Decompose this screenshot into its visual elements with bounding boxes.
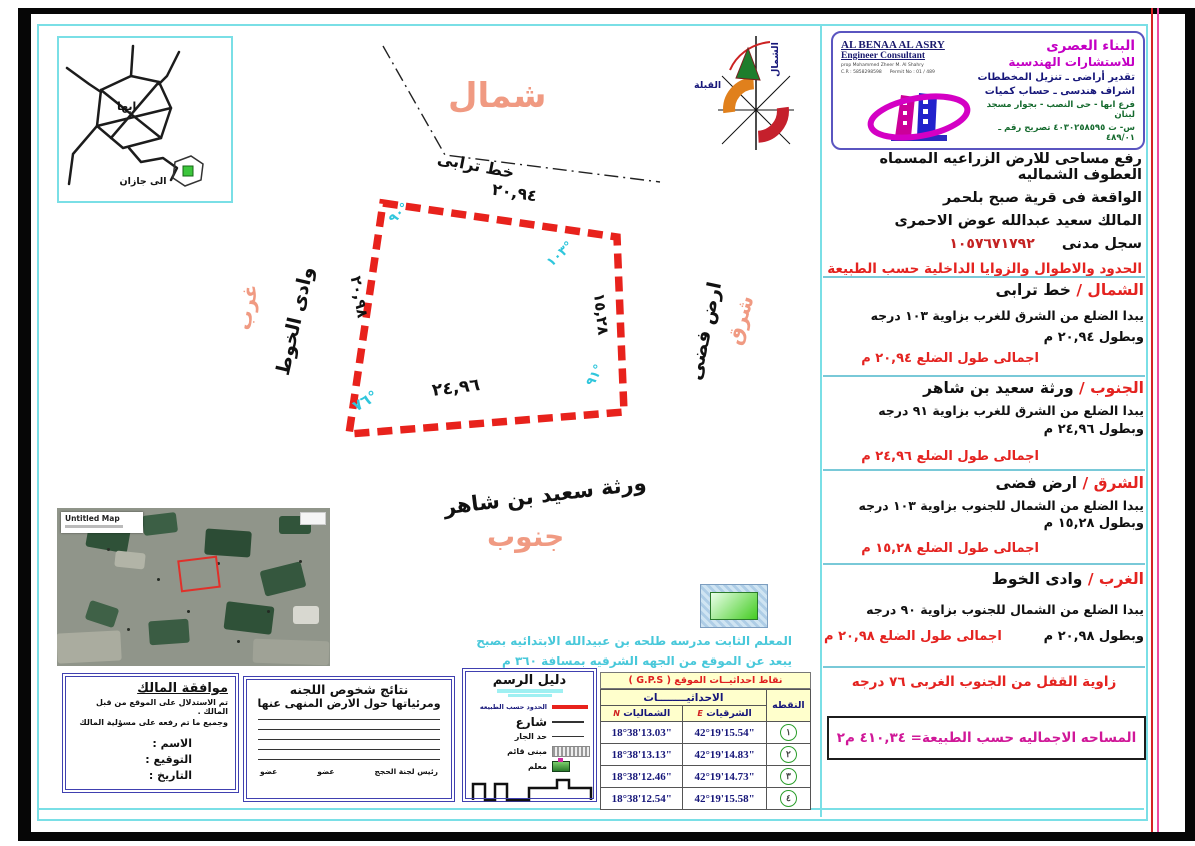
committee-member-label: عضو	[317, 767, 334, 776]
east-letter: E	[697, 709, 702, 718]
writing-line	[258, 719, 440, 720]
north-coordinate: 18°38'13.13"	[601, 744, 683, 766]
satellite-image: Untitled Map	[57, 508, 330, 666]
red-boundary-symbol	[552, 705, 590, 709]
legend-item: مبنى قائم	[469, 744, 590, 759]
north-column-header: الشماليات N	[601, 706, 683, 722]
east-column-header: الشرقيات E	[683, 706, 766, 722]
committee-signature-row: رئيس لجنة الحجج عضو عضو	[252, 767, 446, 776]
total-area-box: المساحه الاجماليه حسب الطبيعة= ٤١٠,٣٤ م٢	[827, 716, 1146, 760]
section-total-length: اجمالى طول الضلع ٢٤,٩٦ م	[824, 449, 1039, 464]
frame-left	[18, 8, 31, 841]
company-permit: Permit No : 01 / 489	[890, 70, 935, 75]
section-length-row: وبطول ٢٠,٩٨ م اجمالى طول الضلع ٢٠,٩٨ م	[824, 629, 1144, 644]
company-cr: C.R : 5858298598	[841, 70, 882, 75]
point-number-cell: ٣	[766, 766, 810, 788]
owner-box-line2: وجميع ما تم رفعه على مسؤلية المالك	[73, 718, 228, 727]
bottom-cyan-rule	[37, 808, 1144, 810]
writing-line	[258, 749, 440, 750]
owner-date-label: التاريخ :	[73, 769, 192, 782]
section-length: وبطول ٢٠,٩٤ م	[824, 330, 1144, 345]
section-boundary: ارض فضى	[996, 474, 1078, 492]
map-title-chip: Untitled Map	[61, 512, 143, 533]
legend-item: الحدود حسب الطبيعه	[469, 699, 590, 714]
section-description: يبدا الضلع من الشرق للغرب بزاوية ٩١ درجه	[824, 403, 1144, 418]
point-number: ١	[780, 724, 797, 741]
field-patch	[259, 561, 306, 596]
committee-title-line2: ومرئياتها حول الارض المنهى عنها	[252, 697, 446, 710]
field-patch	[85, 600, 120, 628]
owner-box-line1: تم الاستدلال على الموقع من قبل المالك .	[73, 698, 228, 716]
section-description: يبدا الضلع من الشرق للغرب بزاوية ١٠٣ درج…	[824, 308, 1144, 323]
table-row: ١ 42°19'15.54" 18°38'13.03"	[601, 722, 811, 744]
point-number-cell: ٤	[766, 788, 810, 810]
field-patch	[142, 512, 178, 536]
landmark-note-line2: يبعد عن الموقع من الجهه الشرقيه بمسافة ٣…	[420, 654, 792, 668]
civil-registry-label: سجل مدنى	[1062, 236, 1142, 252]
satellite-plot-outline	[177, 556, 221, 593]
legend-label-building: مبنى قائم	[469, 747, 552, 756]
right-red-rule	[1151, 8, 1153, 832]
gps-coordinates-table: النقطه الاحداثيــــــــات الشرقيات E الش…	[600, 689, 811, 810]
map-title: Untitled Map	[61, 512, 143, 523]
east-coordinate: 42°19'15.58"	[683, 788, 766, 810]
inset-jazan-label: الى جازان	[100, 176, 186, 187]
section-direction: الشمال /	[1076, 281, 1144, 299]
section-title: الغرب / وادى الخوط	[824, 570, 1144, 588]
writing-line	[258, 759, 440, 760]
frame-bottom	[18, 832, 1188, 841]
section-direction: الجنوب /	[1079, 379, 1144, 397]
east-coordinate: 42°19'15.54"	[683, 722, 766, 744]
company-address2: س- ت ٤٠٣٠٢٥٨٥٩٥ تصريح رقم ـ ٤٨٩/٠١	[967, 123, 1135, 143]
section-description: يبدا الضلع من الشمال للجنوب بزاوية ١٠٣ د…	[824, 498, 1144, 513]
company-service2: اشراف هندسى ـ حساب كميات	[967, 86, 1135, 97]
legend-label-neighbor: حد الجار	[469, 732, 552, 741]
legend-label-landmark: معلم	[469, 762, 552, 771]
drawing-legend-box: دليل الرسم الحدود حسب الطبيعه شارع حد ال…	[462, 668, 597, 802]
committee-findings-box: نتائج شخوص اللجنه ومرئياتها حول الارض ال…	[243, 676, 455, 802]
table-row: ٣ 42°19'14.73" 18°38'12.46"	[601, 766, 811, 788]
north-direction-word: شمال	[448, 76, 547, 116]
company-header-box: AL BENAA AL ASRY Engineer Consultant pro…	[831, 31, 1145, 150]
boundary-section-east: الشرق / ارض فضى يبدا الضلع من الشمال للج…	[824, 474, 1150, 556]
column-divider	[820, 24, 822, 817]
section-divider	[823, 276, 1145, 278]
closing-angle-note: زاوية القفل من الجنوب الغربى ٧٦ درجه	[824, 674, 1144, 690]
section-length: وبطول ٢٠,٩٨ م	[1044, 629, 1144, 644]
writing-line	[258, 729, 440, 730]
section-boundary: خط ترابى	[996, 281, 1071, 299]
section-total-length: اجمالى طول الضلع ١٥,٢٨ م	[824, 541, 1039, 556]
right-pink-rule	[1157, 8, 1159, 832]
compass-north-label: الشمال	[770, 42, 781, 77]
committee-member-label: عضو	[260, 767, 277, 776]
owner-approval-box: موافقة المالك تم الاستدلال على الموقع من…	[62, 673, 239, 793]
street-line-symbol	[552, 721, 590, 723]
terrain-patch	[57, 630, 122, 663]
intro-line2: الواقعة فى قرية صبح بلحمر	[826, 190, 1142, 206]
section-boundary: وادى الخوط	[992, 570, 1083, 588]
owner-box-title: موافقة المالك	[73, 681, 228, 696]
building-hatch-symbol	[552, 746, 590, 757]
section-title: الجنوب / ورثة سعيد بن شاهر	[824, 379, 1144, 397]
legend-title-underline	[497, 689, 563, 693]
building-patch	[293, 606, 319, 624]
company-service1: تقدير أراضى ـ تنزيل المخططات	[967, 72, 1135, 83]
civil-registry-number: ١٠٥٧٦٧١٧٩٢	[949, 236, 1034, 252]
company-arabic-block: البناء العصرى للاستشارات الهندسية تقدير …	[967, 38, 1135, 143]
terrain-patch	[253, 639, 330, 666]
owner-name-label: الاسم :	[73, 737, 192, 750]
table-row: ٢ 42°19'14.83" 18°38'13.13"	[601, 744, 811, 766]
landmark-symbol	[552, 761, 590, 772]
compass-rose-icon	[708, 36, 800, 152]
survey-intro-block: رفع مساحى للارض الزراعيه المسماه العطوف …	[826, 151, 1146, 277]
roads-sketch-icon	[59, 38, 227, 197]
section-divider	[823, 375, 1145, 377]
field-patch	[204, 528, 252, 557]
boundary-section-north: الشمال / خط ترابى يبدا الضلع من الشرق لل…	[824, 281, 1150, 366]
south-direction-word: جنوب	[487, 520, 564, 553]
legend-title-underline	[508, 694, 552, 697]
frame-right	[1185, 8, 1195, 841]
writing-line	[258, 739, 440, 740]
landmark-note-line1: المعلم الثابت مدرسه طلحه بن عبيدالله الا…	[420, 634, 792, 648]
section-title: الشمال / خط ترابى	[824, 281, 1144, 299]
frame-top	[18, 8, 1188, 14]
neighbor-line-symbol	[552, 736, 590, 738]
north-coordinate: 18°38'13.03"	[601, 722, 683, 744]
section-direction: الشرق /	[1083, 474, 1144, 492]
legend-item: معلم	[469, 759, 590, 774]
section-divider	[823, 666, 1145, 668]
legend-title: دليل الرسم	[469, 673, 590, 688]
point-column-header: النقطه	[766, 690, 810, 722]
section-title: الشرق / ارض فضى	[824, 474, 1144, 492]
boundary-section-south: الجنوب / ورثة سعيد بن شاهر يبدا الضلع من…	[824, 379, 1150, 464]
table-header-row: النقطه الاحداثيــــــــات	[601, 690, 811, 706]
east-header-text: الشرقيات	[706, 708, 752, 719]
section-direction: الغرب /	[1088, 570, 1144, 588]
intro-line1: رفع مساحى للارض الزراعيه المسماه العطوف …	[826, 151, 1142, 183]
north-letter: N	[613, 709, 620, 718]
legend-label-boundary: الحدود حسب الطبيعه	[469, 703, 552, 711]
company-logo	[867, 89, 971, 145]
east-coordinate: 42°19'14.73"	[683, 766, 766, 788]
field-patch	[223, 601, 274, 635]
section-divider	[823, 563, 1145, 565]
point-number: ٤	[780, 790, 797, 807]
coords-column-header: الاحداثيــــــــات	[601, 690, 767, 706]
section-length: وبطول ٢٤,٩٦ م	[824, 422, 1144, 437]
legend-label-street: شارع	[469, 715, 552, 729]
intro-line3: المالك سعيد عبدالله عوض الاحمرى	[826, 213, 1142, 229]
section-total-length: اجمالى طول الضلع ٢٠,٩٤ م	[824, 351, 1039, 366]
point-number: ٢	[780, 746, 797, 763]
map-subtitle-line	[65, 525, 123, 528]
north-coordinate: 18°38'12.54"	[601, 788, 683, 810]
section-description: يبدا الضلع من الشمال للجنوب بزاوية ٩٠ در…	[824, 602, 1144, 617]
gps-table-title: نقاط احداثيــات الموقع ( G.P.S )	[600, 672, 811, 689]
table-row: ٤ 42°19'15.58" 18°38'12.54"	[601, 788, 811, 810]
map-legend-chip	[300, 512, 326, 525]
boundary-section-west: الغرب / وادى الخوط يبدا الضلع من الشمال …	[824, 570, 1150, 644]
north-header-text: الشماليات	[623, 708, 670, 719]
building-outline-icon	[469, 776, 595, 802]
committee-title-line1: نتائج شخوص اللجنه	[252, 682, 446, 697]
section-length: وبطول ١٥,٢٨ م	[824, 516, 1144, 531]
point-number-cell: ١	[766, 722, 810, 744]
company-title-ar: للاستشارات الهندسية	[967, 55, 1135, 69]
landmark-green-square	[710, 592, 758, 620]
terrain-patch	[114, 550, 146, 569]
qibla-label: القبلة	[694, 80, 721, 91]
owner-signature-label: التوقيع :	[73, 753, 192, 766]
committee-chairman-label: رئيس لجنة الحجج	[375, 767, 438, 776]
company-name-ar: البناء العصرى	[967, 38, 1135, 54]
company-address1: فرع ابها - حى النصب - بجوار مسجد لبنان	[967, 100, 1135, 120]
point-number: ٣	[780, 768, 797, 785]
field-patch	[148, 619, 190, 646]
survey-document-page: ابها الى جازان شمال القبلة الشمال خط ترا…	[0, 0, 1195, 846]
legend-item: حد الجار	[469, 729, 590, 744]
section-boundary: ورثة سعيد بن شاهر	[923, 379, 1073, 397]
legend-item: شارع	[469, 714, 590, 729]
section-divider	[823, 469, 1145, 471]
intro-red-note: الحدود والاطوال والزوايا الداخلية حسب ال…	[826, 261, 1142, 277]
section-total-length: اجمالى طول الضلع ٢٠,٩٨ م	[824, 629, 1002, 644]
north-coordinate: 18°38'12.46"	[601, 766, 683, 788]
landmark-marker-icon	[700, 584, 768, 628]
point-number-cell: ٢	[766, 744, 810, 766]
inset-city-label: ابها	[117, 100, 136, 113]
east-coordinate: 42°19'14.83"	[683, 744, 766, 766]
site-marker-icon	[183, 166, 193, 176]
civil-registry-row: سجل مدنى ١٠٥٧٦٧١٧٩٢	[826, 236, 1142, 252]
